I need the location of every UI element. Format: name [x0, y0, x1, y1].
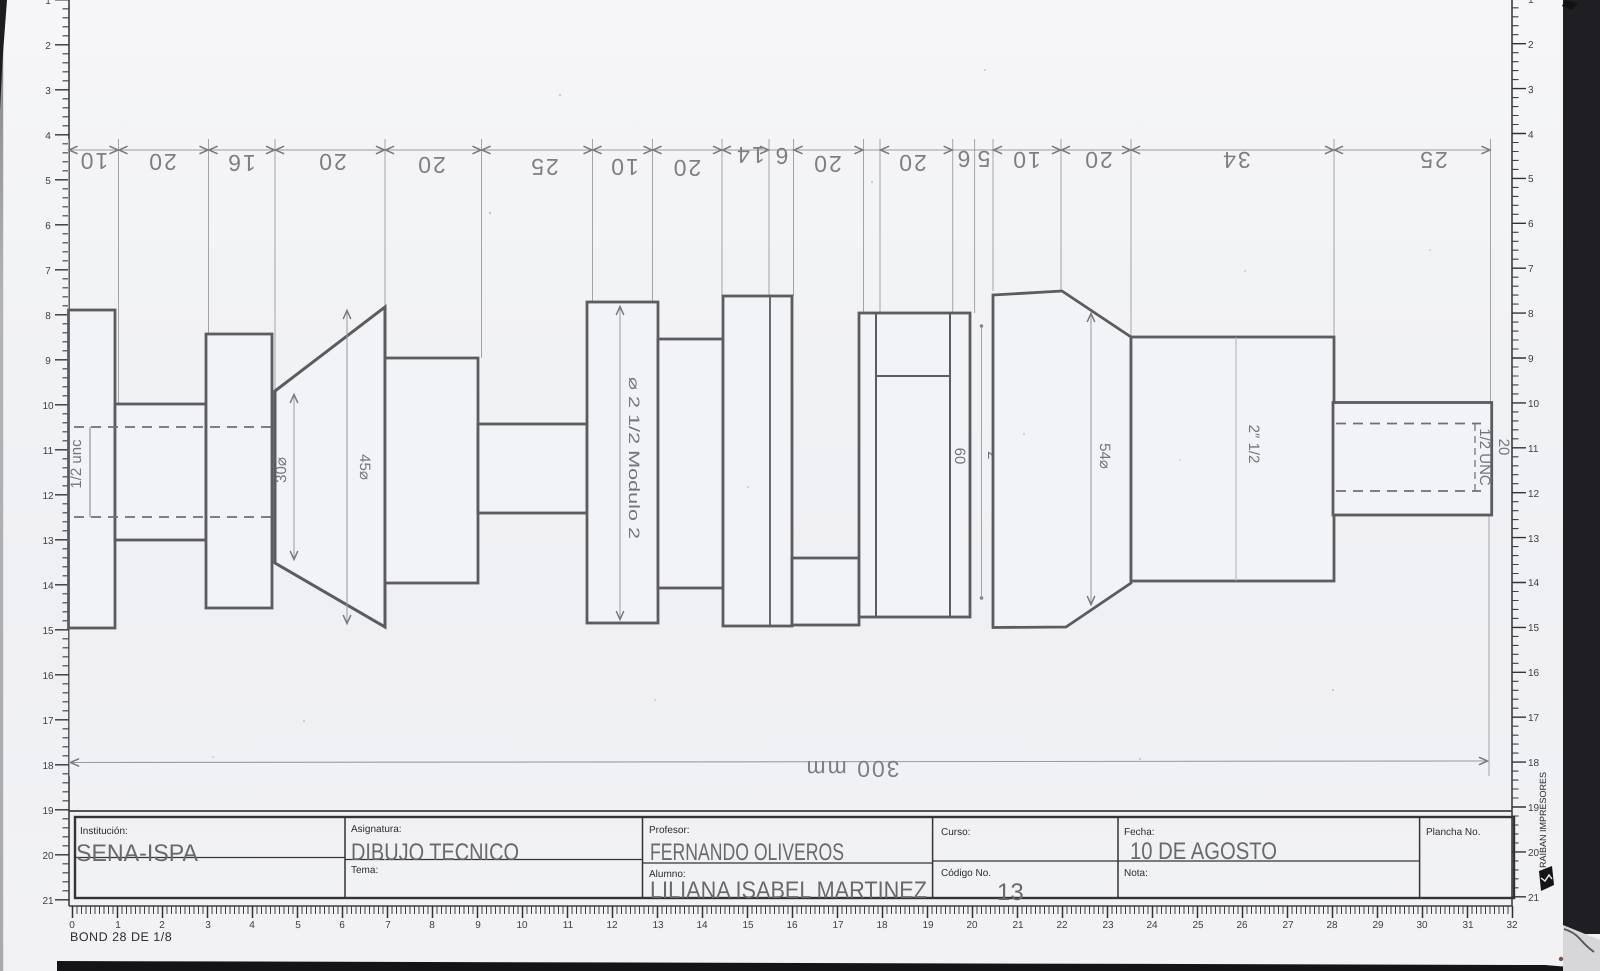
- svg-text:25: 25: [529, 154, 559, 180]
- svg-text:10: 10: [1011, 147, 1041, 173]
- svg-text:3: 3: [45, 86, 51, 97]
- svg-text:26: 26: [1236, 920, 1248, 931]
- svg-text:24: 24: [1146, 920, 1158, 931]
- svg-text:34: 34: [1221, 147, 1251, 173]
- svg-text:12: 12: [606, 920, 618, 931]
- svg-text:6: 6: [1528, 219, 1534, 230]
- svg-text:18: 18: [42, 761, 54, 772]
- svg-text:15: 15: [42, 626, 54, 637]
- svg-text:11: 11: [1528, 444, 1539, 455]
- svg-text:14: 14: [696, 920, 708, 931]
- svg-text:7: 7: [1528, 264, 1534, 275]
- svg-text:Nota:: Nota:: [1124, 868, 1148, 879]
- svg-text:10: 10: [609, 154, 639, 180]
- svg-text:20: 20: [1495, 439, 1512, 456]
- svg-text:19: 19: [922, 920, 934, 931]
- svg-text:8: 8: [1528, 309, 1534, 320]
- svg-text:20: 20: [812, 151, 842, 177]
- svg-text:31: 31: [1462, 920, 1474, 931]
- svg-text:13: 13: [997, 879, 1024, 906]
- svg-text:32: 32: [1506, 920, 1518, 931]
- svg-text:25: 25: [1192, 920, 1204, 931]
- svg-text:1/2 unc: 1/2 unc: [68, 439, 85, 489]
- svg-text:⌀ 2 1/2 Modulo 2: ⌀ 2 1/2 Modulo 2: [625, 377, 642, 539]
- svg-text:20: 20: [147, 149, 177, 175]
- svg-text:20: 20: [1083, 147, 1113, 173]
- svg-text:23: 23: [1102, 920, 1114, 931]
- svg-text:25: 25: [1418, 147, 1448, 173]
- svg-text:6: 6: [956, 146, 971, 172]
- svg-text:20: 20: [672, 155, 702, 181]
- svg-text:29: 29: [1372, 920, 1384, 931]
- svg-text:15: 15: [1528, 623, 1540, 634]
- svg-text:19: 19: [42, 806, 54, 817]
- svg-text:7: 7: [45, 266, 51, 277]
- svg-text:1: 1: [1528, 0, 1534, 6]
- svg-text:30: 30: [1416, 920, 1428, 931]
- svg-text:Tema:: Tema:: [351, 865, 378, 876]
- svg-text:Fecha:: Fecha:: [1124, 827, 1155, 838]
- svg-text:21: 21: [42, 896, 54, 907]
- svg-text:5: 5: [295, 920, 301, 931]
- svg-text:4: 4: [45, 131, 51, 142]
- svg-text:14: 14: [42, 581, 54, 592]
- svg-text:17: 17: [832, 920, 844, 931]
- svg-text:20: 20: [317, 149, 347, 175]
- svg-text:16: 16: [226, 150, 256, 176]
- svg-text:6: 6: [339, 920, 345, 931]
- svg-text:11: 11: [43, 446, 54, 457]
- svg-text:12: 12: [1528, 489, 1540, 500]
- svg-text:20: 20: [897, 150, 927, 176]
- svg-text:21: 21: [1528, 893, 1540, 904]
- svg-text:6: 6: [45, 221, 51, 232]
- svg-text:10: 10: [79, 148, 109, 174]
- svg-text:28: 28: [1326, 920, 1338, 931]
- svg-text:4: 4: [1528, 130, 1534, 141]
- svg-text:2: 2: [45, 41, 51, 52]
- svg-text:13: 13: [1528, 534, 1540, 545]
- svg-text:16: 16: [1528, 668, 1540, 679]
- svg-text:4: 4: [249, 920, 255, 931]
- svg-text:16: 16: [786, 920, 798, 931]
- svg-text:1/2 UNC: 1/2 UNC: [1476, 428, 1493, 486]
- svg-text:45⌀: 45⌀: [356, 454, 373, 480]
- svg-text:13: 13: [652, 920, 664, 931]
- svg-text:8: 8: [45, 311, 51, 322]
- svg-text:8: 8: [429, 920, 435, 931]
- svg-text:17: 17: [42, 716, 54, 727]
- svg-text:Código No.: Código No.: [941, 868, 991, 879]
- svg-text:Profesor:: Profesor:: [649, 825, 690, 836]
- svg-text:9: 9: [45, 356, 51, 367]
- svg-text:20: 20: [42, 851, 54, 862]
- svg-text:BOND 28 DE 1/8: BOND 28 DE 1/8: [70, 930, 172, 944]
- svg-text:9: 9: [475, 920, 481, 931]
- svg-text:17: 17: [1528, 713, 1540, 724]
- svg-text:LILIANA ISABEL MARTINEZ: LILIANA ISABEL MARTINEZ: [650, 877, 927, 904]
- svg-text:Curso:: Curso:: [941, 827, 970, 838]
- svg-text:3: 3: [1528, 85, 1534, 96]
- svg-text:27: 27: [1282, 920, 1294, 931]
- svg-text:3: 3: [205, 920, 211, 931]
- svg-text:18: 18: [1528, 758, 1540, 769]
- svg-text:5: 5: [45, 176, 51, 187]
- svg-text:SENA-ISPA: SENA-ISPA: [76, 840, 198, 867]
- svg-text:20: 20: [966, 920, 978, 931]
- svg-text:30⌀: 30⌀: [273, 457, 290, 483]
- svg-text:18: 18: [876, 920, 888, 931]
- svg-text:10: 10: [42, 401, 54, 412]
- svg-text:5: 5: [1528, 174, 1534, 185]
- svg-text:Institución:: Institución:: [80, 826, 128, 837]
- svg-text:14: 14: [1528, 578, 1540, 589]
- svg-text:DIBUJO TECNICO: DIBUJO TECNICO: [351, 839, 519, 866]
- svg-text:Asignatura:: Asignatura:: [351, 824, 402, 835]
- svg-text:300 mm: 300 mm: [804, 756, 899, 782]
- svg-text:13: 13: [42, 536, 54, 547]
- svg-text:2: 2: [1528, 40, 1534, 51]
- svg-text:7: 7: [385, 920, 391, 931]
- svg-text:9: 9: [1528, 354, 1534, 365]
- svg-text:60: 60: [951, 448, 968, 465]
- svg-text:1: 1: [45, 0, 51, 7]
- svg-text:14: 14: [735, 142, 765, 168]
- svg-text:15: 15: [742, 920, 754, 931]
- svg-text:54⌀: 54⌀: [1096, 443, 1113, 469]
- svg-text:22: 22: [1056, 920, 1068, 931]
- svg-text:5: 5: [976, 146, 991, 172]
- svg-text:10: 10: [516, 920, 528, 931]
- svg-text:FERNANDO OLIVEROS: FERNANDO OLIVEROS: [650, 839, 844, 866]
- svg-text:10 DE AGOSTO: 10 DE AGOSTO: [1130, 838, 1277, 865]
- svg-text:Plancha No.: Plancha No.: [1426, 827, 1480, 838]
- svg-text:6: 6: [774, 143, 789, 169]
- svg-text:11: 11: [563, 920, 574, 931]
- svg-text:21: 21: [1012, 920, 1024, 931]
- svg-text:12: 12: [42, 491, 54, 502]
- svg-text:16: 16: [42, 671, 54, 682]
- svg-text:2″ 1/2: 2″ 1/2: [1245, 425, 1262, 464]
- svg-text:20: 20: [416, 152, 446, 178]
- svg-text:10: 10: [1528, 399, 1540, 410]
- svg-text:RAIBAN IMPRESORES: RAIBAN IMPRESORES: [1538, 772, 1548, 868]
